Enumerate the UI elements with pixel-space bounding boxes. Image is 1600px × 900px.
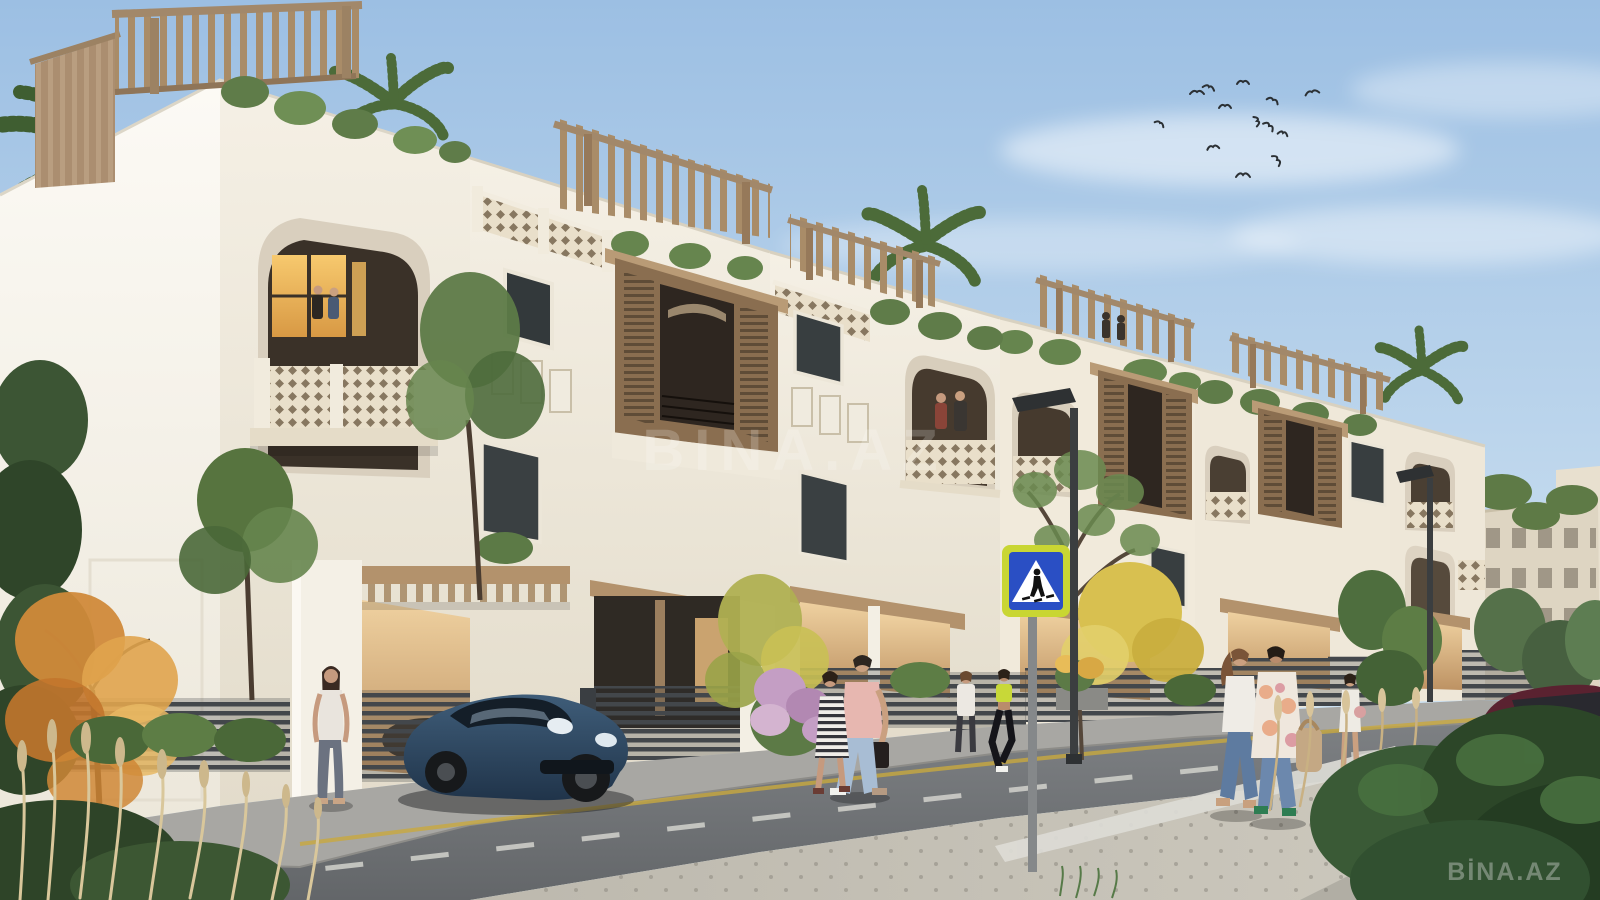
driveway-trellis-beam (345, 566, 570, 584)
white-top (318, 690, 344, 740)
pink-tshirt (842, 682, 883, 738)
villa5-window (1350, 440, 1385, 505)
lime-top (996, 684, 1012, 702)
villa6-lattice-band (1458, 560, 1485, 590)
lamp1-pole (1070, 408, 1078, 760)
sign-pole (1028, 610, 1037, 872)
villa1-roof-screen (35, 38, 115, 188)
villa1-arch-balcony (250, 218, 438, 478)
watermark-corner: BİNA.AZ (1447, 858, 1562, 886)
watermark-center: BINA.AZ (642, 418, 947, 483)
villa2-window-lower (482, 442, 540, 542)
architectural-render: BINA.AZ BİNA.AZ (0, 0, 1600, 900)
villa3-window-lower (800, 472, 848, 562)
pink-bag (1354, 706, 1366, 718)
lace-top (1222, 676, 1258, 732)
car-front-intake (540, 760, 614, 774)
scene-canvas: BINA.AZ BİNA.AZ (0, 0, 1600, 900)
white-blouse (957, 684, 975, 716)
villa2-planter (477, 532, 533, 564)
lamp2-pole (1427, 478, 1433, 702)
villa1-balcony-lattice (258, 366, 430, 428)
villa3-window-upper (795, 312, 842, 384)
